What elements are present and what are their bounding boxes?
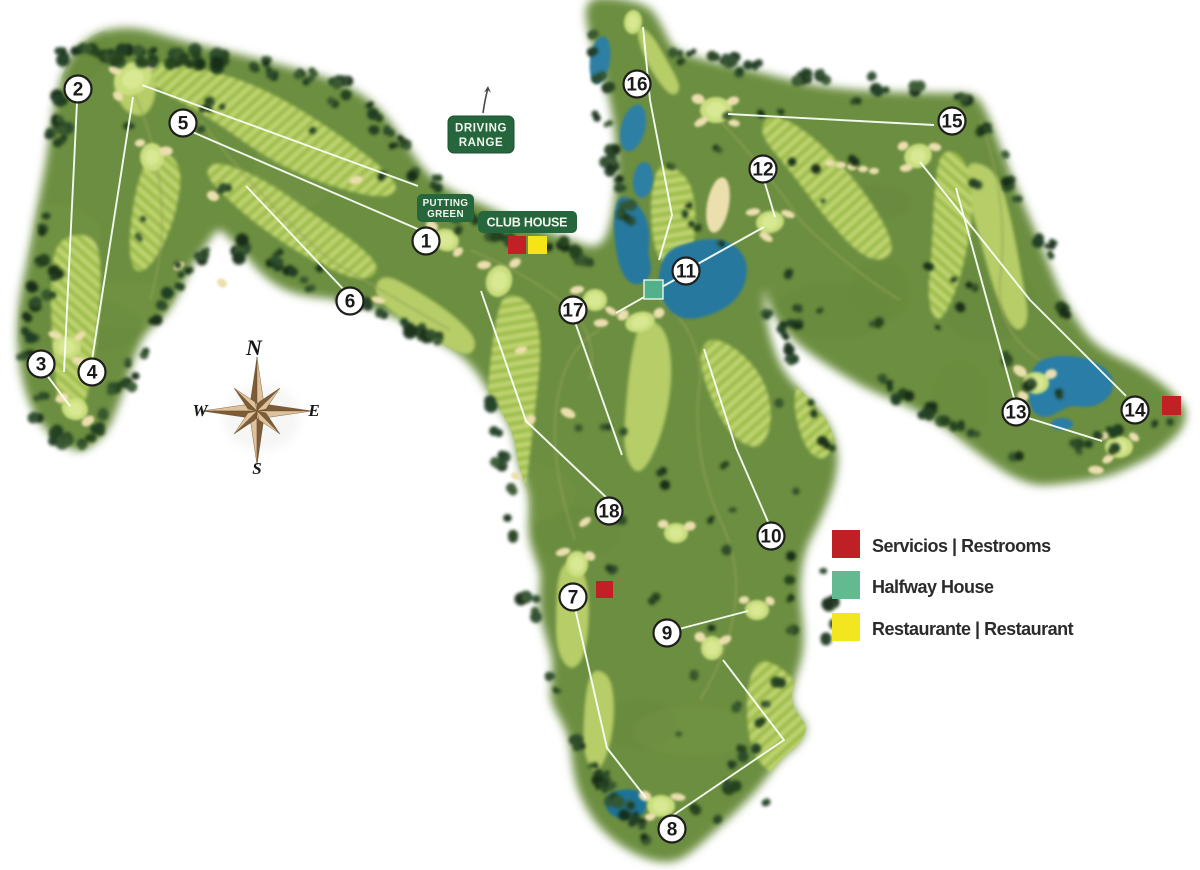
svg-text:DRIVING: DRIVING: [455, 123, 507, 135]
svg-text:8: 8: [667, 820, 678, 841]
svg-text:16: 16: [626, 75, 647, 96]
svg-text:14: 14: [1124, 401, 1146, 422]
svg-text:GREEN: GREEN: [427, 209, 464, 220]
svg-text:17: 17: [562, 301, 583, 322]
svg-text:CLUB HOUSE: CLUB HOUSE: [487, 216, 568, 230]
svg-text:Servicios | Restrooms: Servicios | Restrooms: [872, 536, 1051, 556]
svg-text:15: 15: [941, 112, 963, 133]
svg-text:1: 1: [421, 232, 432, 253]
svg-text:9: 9: [662, 624, 673, 645]
svg-text:W: W: [192, 401, 209, 420]
svg-text:Restaurante | Restaurant: Restaurante | Restaurant: [872, 619, 1074, 639]
svg-text:E: E: [307, 401, 319, 420]
svg-text:11: 11: [676, 262, 697, 283]
svg-text:13: 13: [1005, 403, 1026, 424]
svg-text:PUTTING: PUTTING: [423, 198, 469, 209]
svg-text:5: 5: [178, 114, 189, 135]
svg-text:N: N: [245, 335, 263, 360]
svg-text:3: 3: [36, 355, 47, 376]
svg-text:7: 7: [568, 588, 579, 609]
svg-text:Halfway House: Halfway House: [872, 577, 994, 597]
svg-text:S: S: [252, 459, 261, 478]
svg-text:4: 4: [87, 363, 98, 384]
svg-text:RANGE: RANGE: [459, 137, 504, 149]
svg-text:6: 6: [345, 292, 356, 313]
svg-text:18: 18: [598, 502, 619, 523]
svg-text:2: 2: [73, 80, 84, 101]
svg-text:10: 10: [760, 527, 781, 548]
svg-text:12: 12: [752, 160, 773, 181]
